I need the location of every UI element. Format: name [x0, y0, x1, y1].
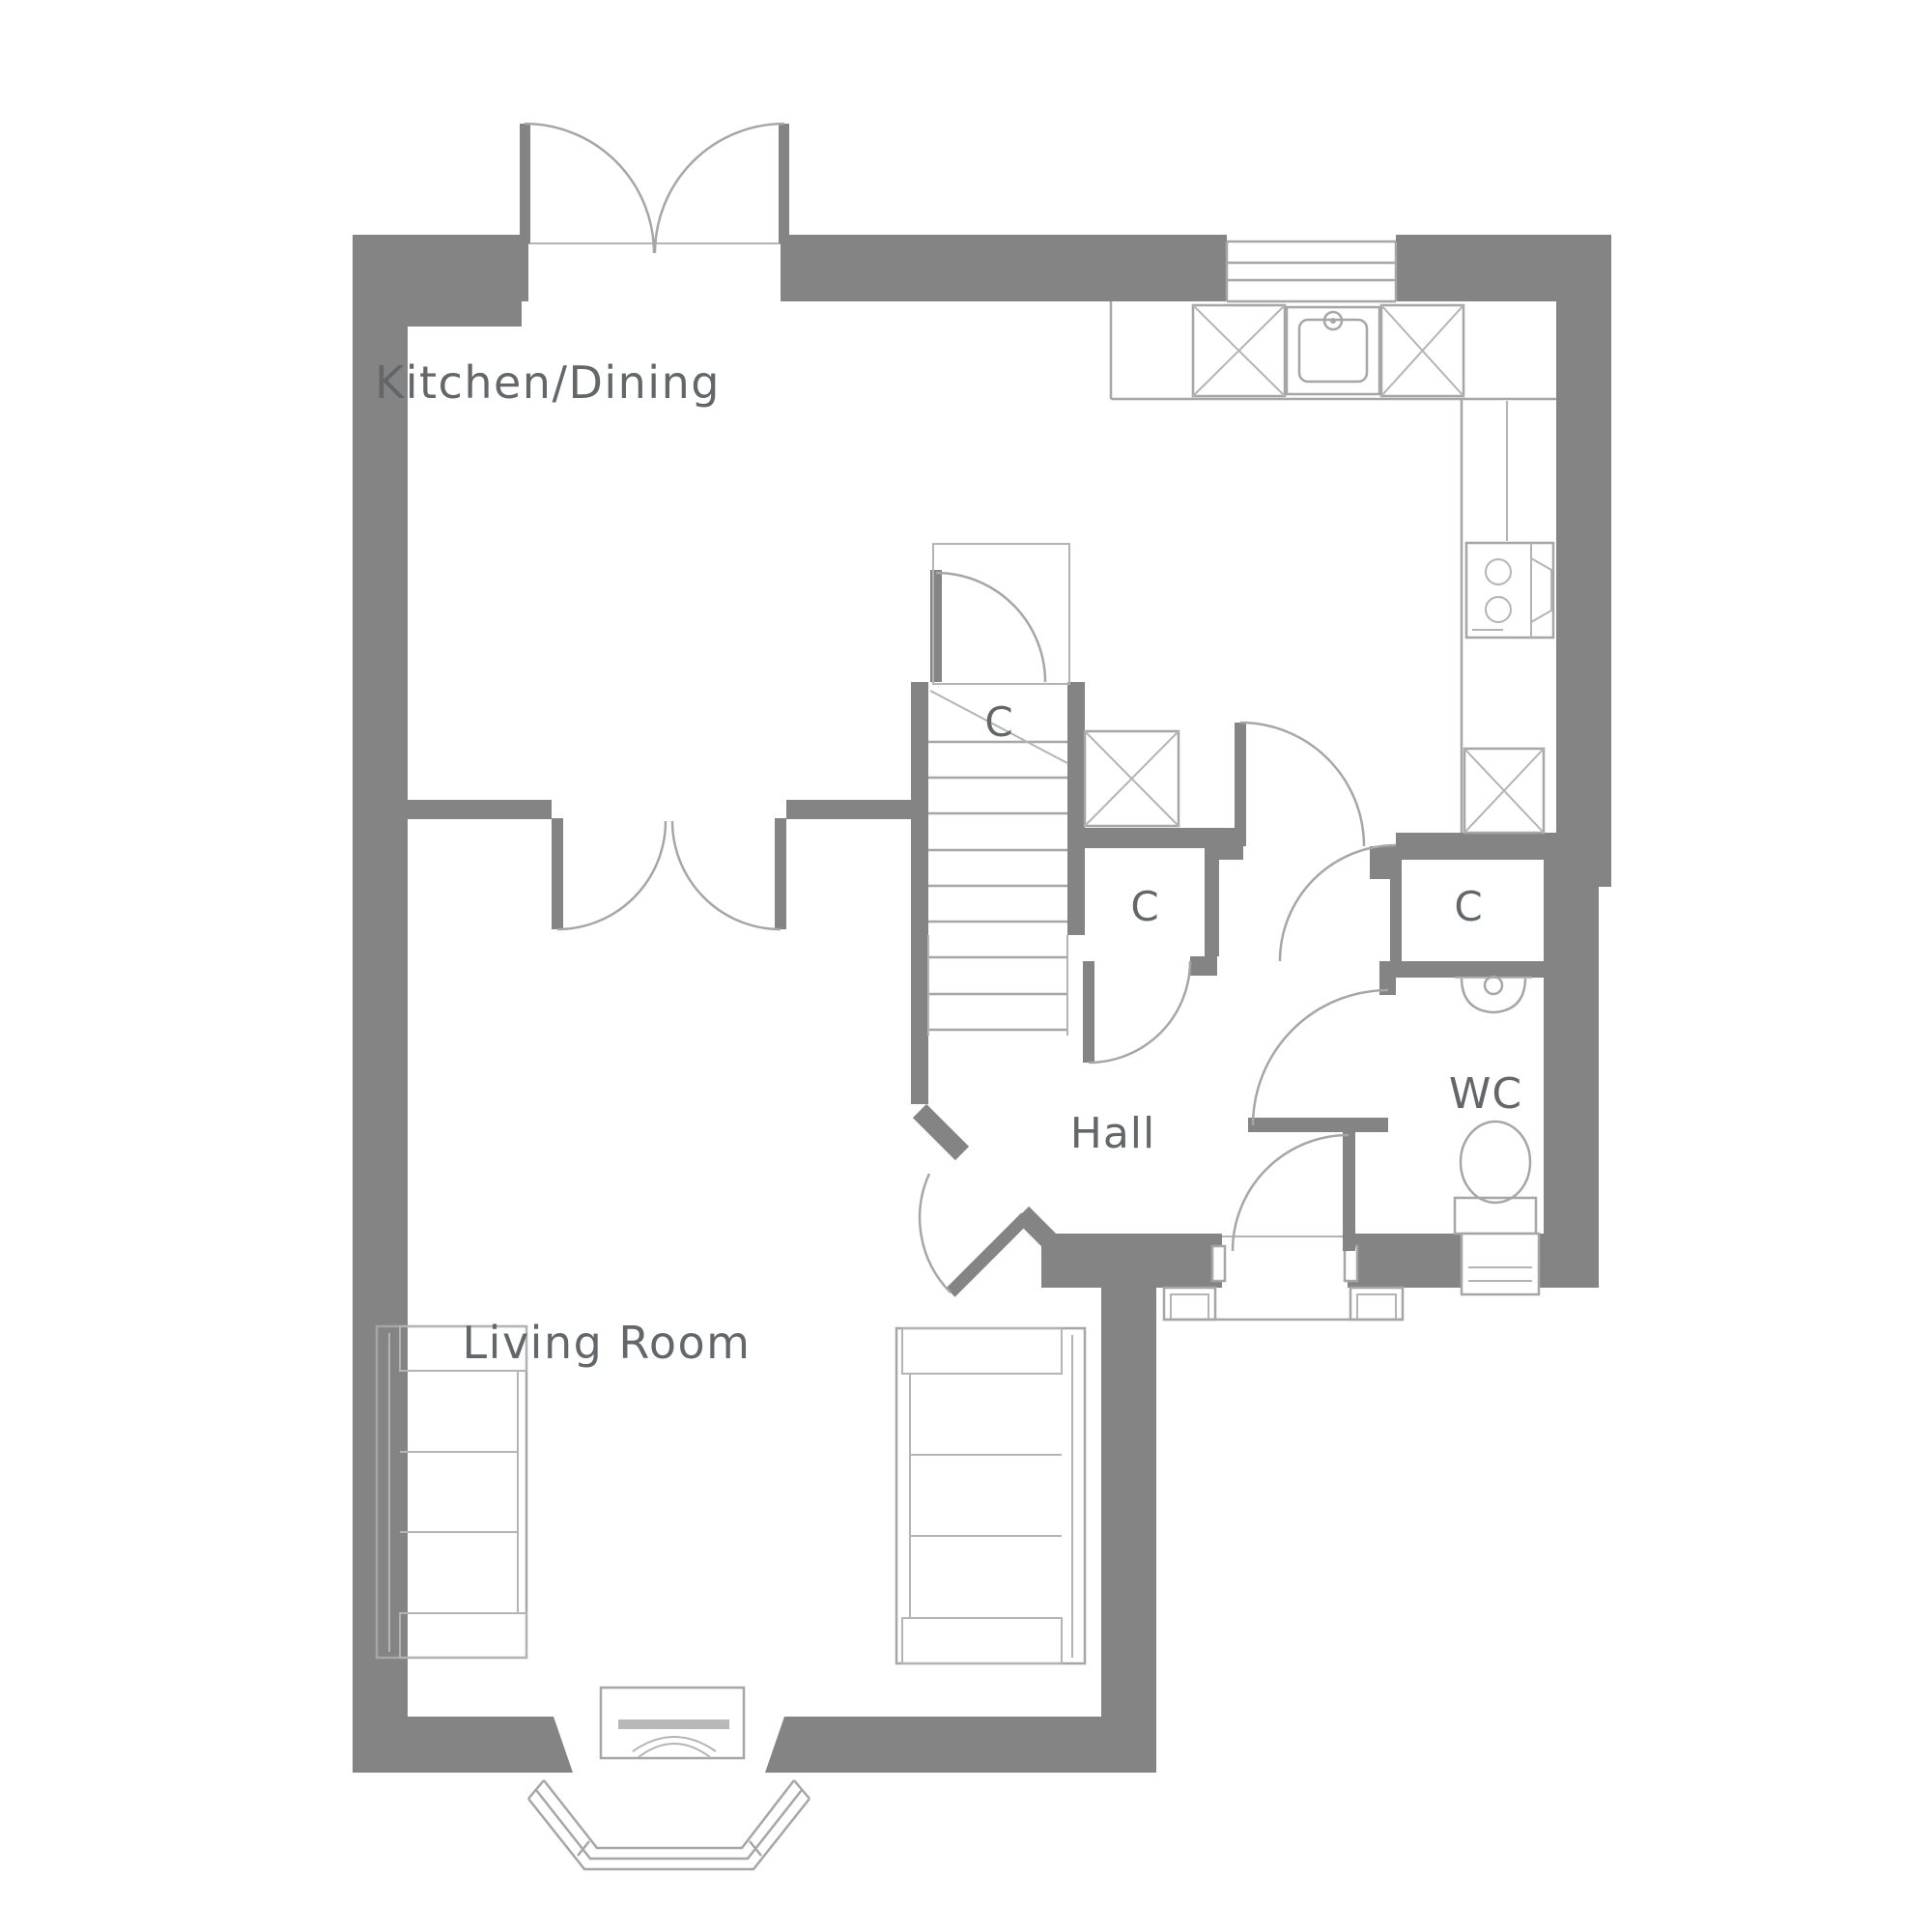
- bay-glazing-inner: [544, 1780, 794, 1848]
- label-closet-right: C: [1454, 883, 1482, 930]
- wall-stair-left: [911, 682, 928, 1104]
- french-doors: [520, 124, 789, 253]
- french-door-arc-left: [525, 124, 654, 253]
- wc-door: [1248, 990, 1388, 1132]
- landing-door-leaf: [930, 570, 942, 682]
- fireplace: [601, 1688, 744, 1758]
- mid-closet-door: [1083, 961, 1190, 1063]
- wc-toilet: [1455, 1122, 1536, 1234]
- kitchen-hall-door-arc: [1240, 723, 1364, 846]
- fireplace-arc-inner: [639, 1744, 710, 1757]
- window-gap: [1227, 235, 1396, 301]
- label-closet-understairs: C: [984, 698, 1012, 746]
- stairs: [928, 544, 1069, 1036]
- front-door-jamb-right: [1345, 1246, 1357, 1281]
- stairs-landing-door: [930, 570, 1045, 682]
- hob-outline: [1466, 543, 1553, 638]
- sofa-right: [896, 1328, 1085, 1663]
- double-door-leaf-left: [552, 818, 563, 929]
- double-door-arc-right: [672, 821, 781, 929]
- front-door-arc: [1233, 1135, 1349, 1251]
- right-closet-door-leaf: [1390, 845, 1402, 961]
- label-hall: Hall: [1070, 1109, 1156, 1158]
- living-hall-door: [920, 1174, 1026, 1293]
- appliance-box-1: [1193, 305, 1285, 396]
- living-hall-door-leaf: [951, 1217, 1026, 1293]
- front-door: [1212, 1135, 1357, 1281]
- kitchen-window: [1227, 235, 1396, 301]
- sink-tap-dot: [1330, 318, 1336, 324]
- wall-right-lower: [1544, 860, 1599, 1288]
- sofa-arm-top: [902, 1328, 1062, 1374]
- porch-pillar-right-inner: [1357, 1294, 1396, 1320]
- kitchen-sink: [1287, 307, 1379, 394]
- porch: [1164, 1288, 1403, 1320]
- wall-wc-closet-bottom: [1396, 961, 1544, 978]
- appliance-box-4: [1464, 749, 1544, 833]
- wall-stair-right: [1067, 682, 1085, 935]
- wc-door-arc: [1253, 990, 1388, 1125]
- landing-door-arc: [936, 573, 1045, 682]
- basin-tap: [1485, 977, 1502, 994]
- appliance-box-2: [1381, 305, 1463, 396]
- porch-pillar-left-inner: [1171, 1294, 1208, 1320]
- hob-hood: [1531, 558, 1551, 622]
- interior-walls: [408, 682, 1544, 1244]
- wc-basin: [1455, 977, 1532, 1012]
- porch-pillar-right: [1350, 1288, 1403, 1320]
- wall-mid-closet-doorpost: [1190, 956, 1217, 976]
- wall-corner-step: [408, 301, 522, 327]
- french-door-leaf-right: [779, 124, 789, 243]
- label-living-room: Living Room: [463, 1317, 752, 1369]
- sofa-arm-bottom: [400, 1613, 526, 1658]
- wall-left: [353, 235, 408, 1773]
- fireplace-bar: [618, 1719, 729, 1729]
- wc-door-leaf: [1248, 1118, 1388, 1132]
- sofa-arm-bottom: [902, 1618, 1062, 1663]
- label-closet-middle: C: [1130, 883, 1158, 930]
- wall-right-upper: [1556, 235, 1611, 887]
- wall-bottom-right: [765, 1717, 1156, 1773]
- hob-burner: [1486, 559, 1511, 584]
- double-doors-kitchen-living: [552, 818, 786, 929]
- exterior-walls: [353, 235, 1611, 1773]
- mid-closet-door-leaf: [1083, 961, 1094, 1063]
- french-door-leaf-left: [520, 124, 530, 243]
- wall-mid-closet-top: [1085, 828, 1219, 848]
- wc-vanity-unit: [1462, 1234, 1539, 1294]
- wall-top-middle: [781, 235, 1227, 301]
- wall-kitchen-closet: [1396, 833, 1611, 860]
- front-door-jamb-left: [1212, 1246, 1225, 1281]
- vanity-outline: [1462, 1234, 1539, 1294]
- floor-plan: Kitchen/Dining Living Room Hall WC C C C: [0, 0, 1932, 1932]
- wall-living-right: [1101, 1249, 1156, 1773]
- living-hall-door-arc: [920, 1174, 951, 1293]
- sofa-outline: [896, 1328, 1085, 1663]
- double-door-arc-left: [557, 821, 666, 929]
- wall-diagonal-a: [920, 1111, 962, 1153]
- bay-window: [528, 1780, 810, 1869]
- wall-mid-closet-right: [1205, 848, 1219, 956]
- hob: [1466, 543, 1553, 638]
- kitchen-hall-door-leaf: [1235, 723, 1246, 846]
- mid-closet-door-arc: [1089, 961, 1190, 1063]
- wall-divider-right: [786, 800, 916, 819]
- appliance-box-3: [1085, 731, 1179, 826]
- double-door-leaf-right: [775, 818, 786, 929]
- toilet-bowl: [1461, 1122, 1530, 1203]
- label-wc: WC: [1449, 1069, 1522, 1119]
- french-door-arc-right: [655, 124, 784, 253]
- kitchen-hall-door: [1235, 723, 1364, 846]
- wall-bottom-left: [353, 1717, 573, 1773]
- hob-burner: [1486, 597, 1511, 622]
- stairs-landing: [933, 544, 1069, 684]
- label-kitchen-dining: Kitchen/Dining: [375, 356, 721, 409]
- wall-divider-left: [408, 800, 552, 819]
- front-door-leaf: [1343, 1135, 1355, 1251]
